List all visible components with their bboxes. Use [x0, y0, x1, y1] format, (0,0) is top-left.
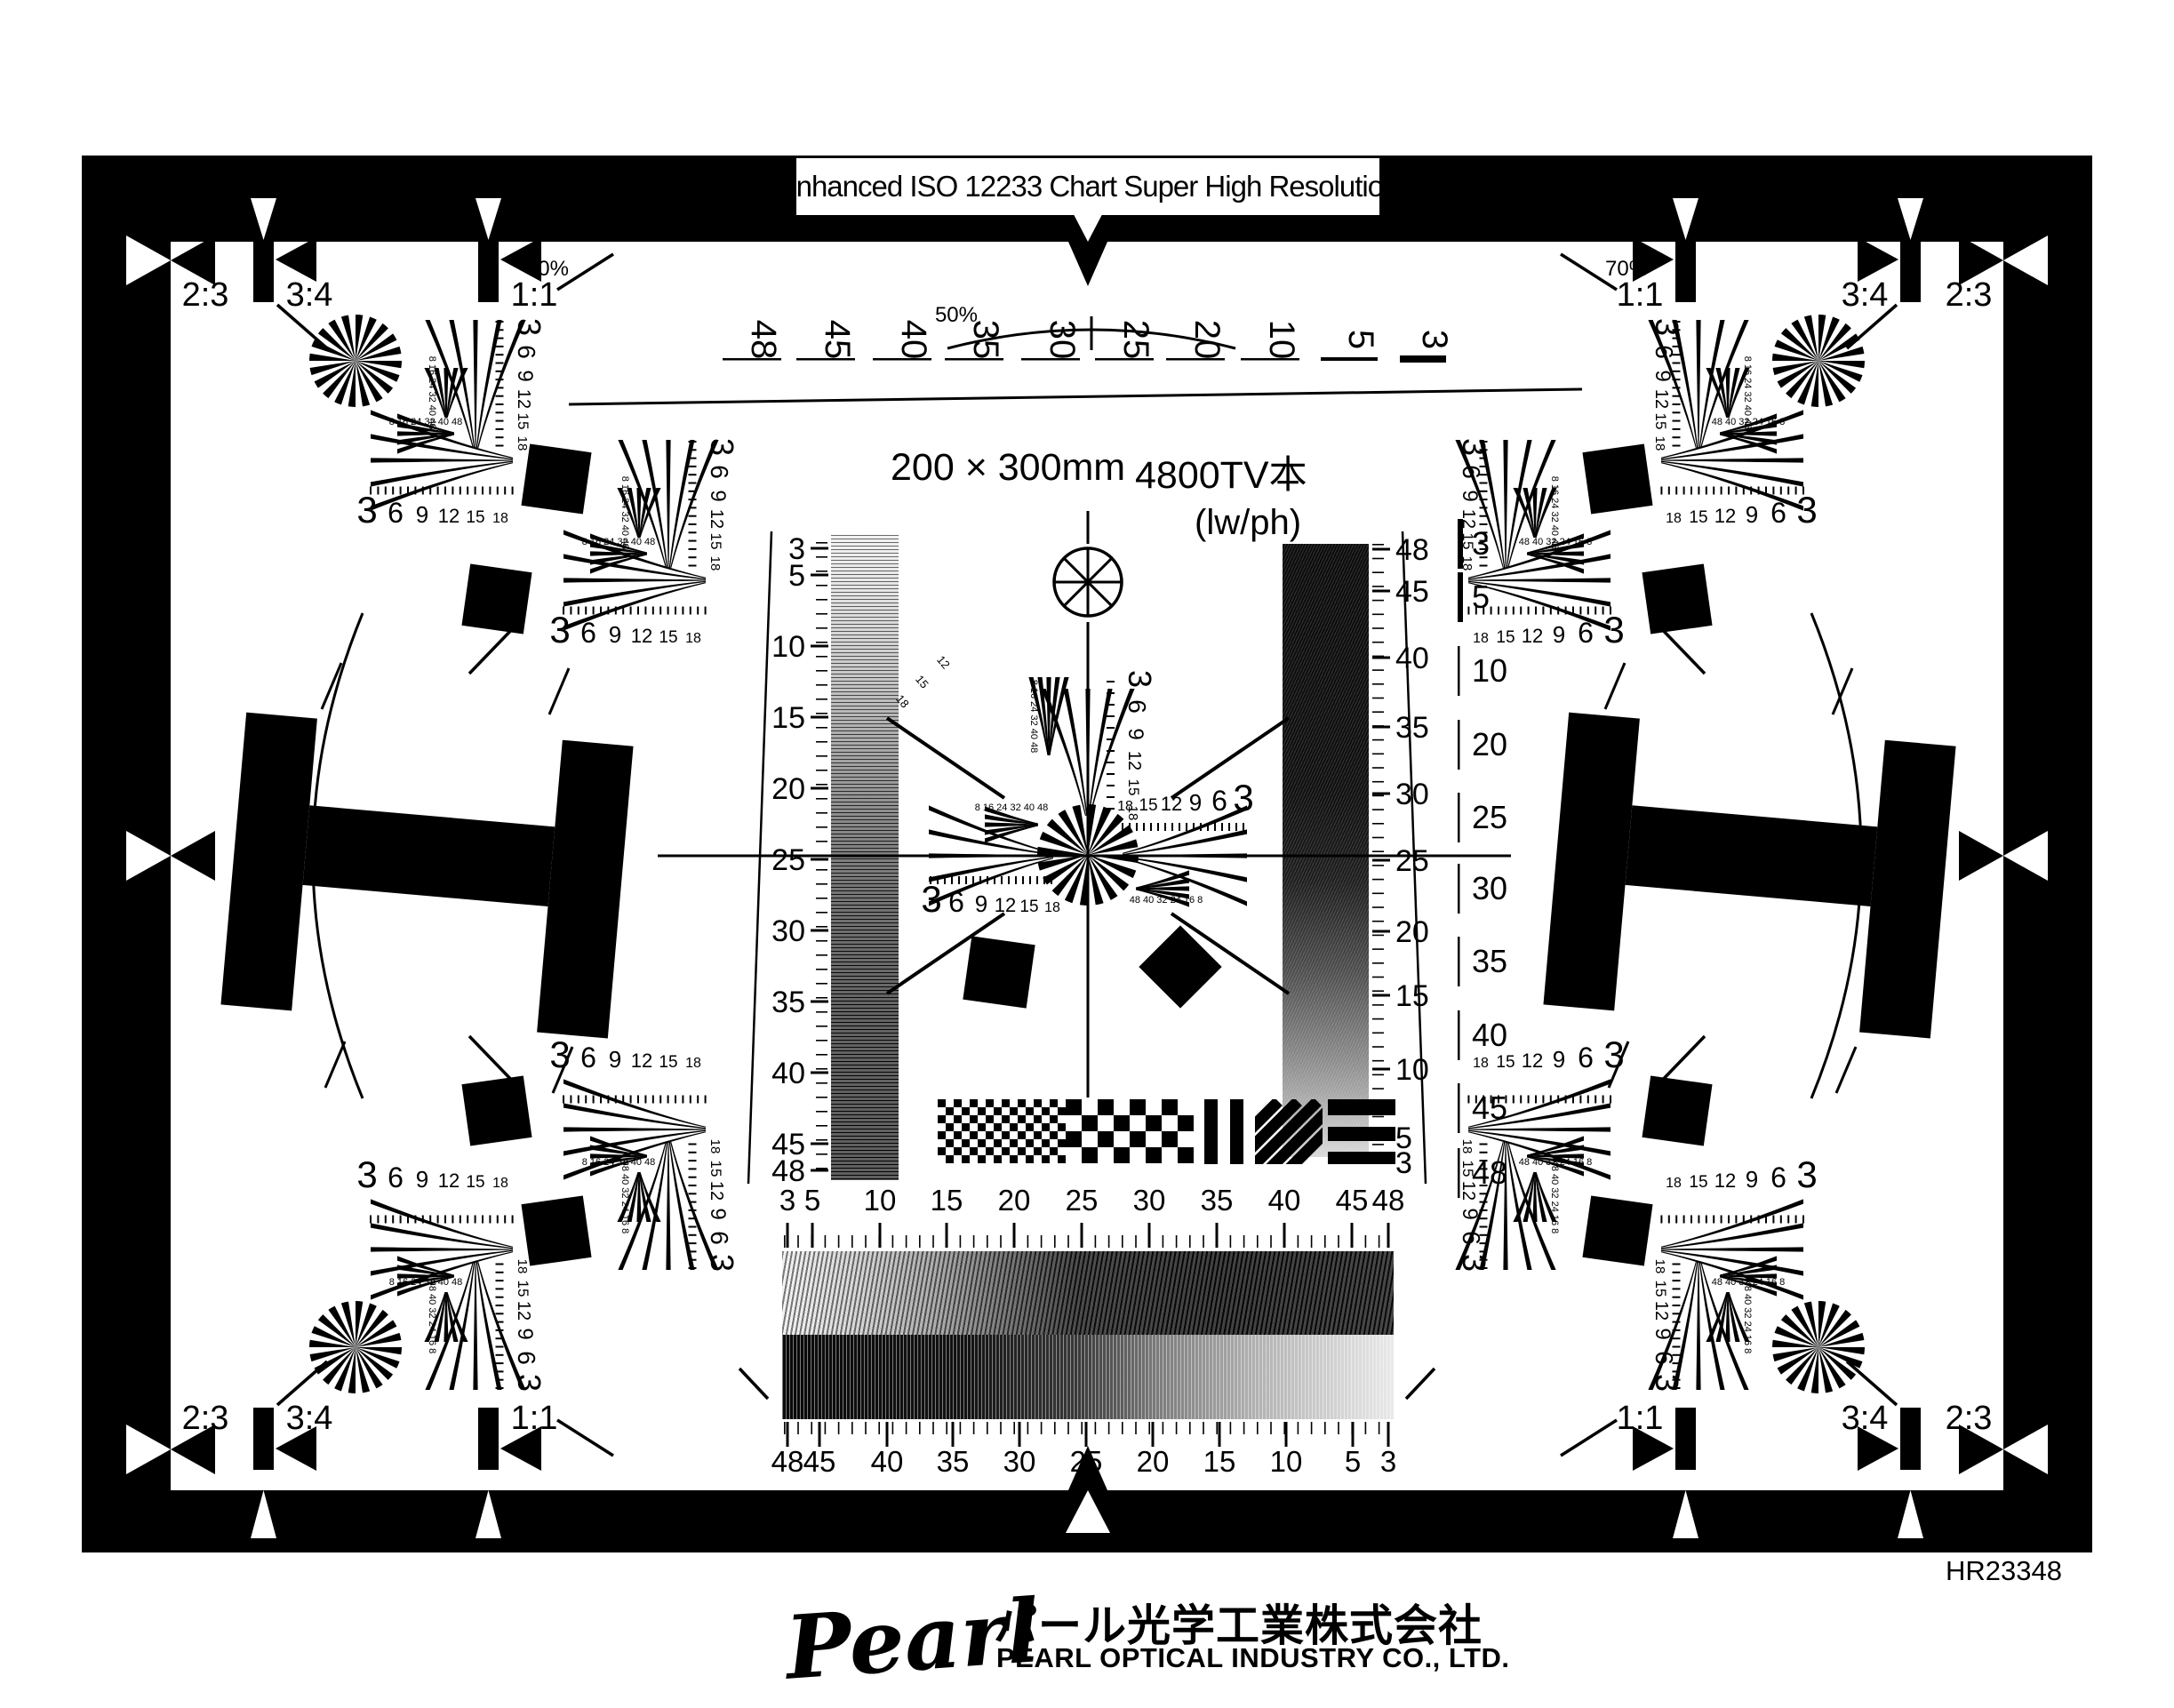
scale-line	[796, 358, 855, 361]
tick	[512, 1216, 514, 1224]
checker-cell-fine	[1042, 1139, 1050, 1147]
checker-cell-fine	[978, 1139, 986, 1147]
tick-minor	[1372, 614, 1384, 616]
test-chart-page: 2:32:33:43:41:11:11:11:13:43:42:32:33691…	[0, 0, 2174, 1708]
pointer-stroke	[469, 624, 517, 674]
tick-major	[811, 930, 828, 932]
sweep-scale-number: 20	[1472, 726, 1507, 762]
tick	[496, 1297, 504, 1298]
tick	[622, 1096, 624, 1104]
tick	[496, 403, 504, 405]
tick	[585, 607, 587, 615]
aspect-ratio-label: 3:4	[286, 1400, 333, 1437]
bottom-sweep-rulers: 3510152025303540454848454035302520151053	[771, 1184, 1405, 1478]
wedge-scale-number: 15	[1652, 1281, 1669, 1297]
tick-minor	[1095, 1235, 1097, 1248]
wedge-scale-number: 12	[707, 1181, 726, 1201]
tick-minor	[1216, 1235, 1218, 1248]
tick	[1660, 487, 1662, 495]
tick-minor	[1257, 1422, 1259, 1434]
tick	[496, 420, 504, 422]
sweep-scale-number: 45	[803, 1445, 836, 1478]
tick-minor	[816, 642, 827, 643]
tick	[1235, 823, 1237, 831]
tick	[1221, 823, 1223, 831]
wedge-scale-number: 18	[1459, 1139, 1475, 1154]
tick	[675, 1096, 676, 1104]
tick	[607, 607, 609, 615]
sweep-scale-number: 35	[1472, 943, 1507, 979]
wedge-scale-number: 15	[659, 628, 677, 647]
h-target-right	[1543, 713, 1955, 1039]
wedge-scale-number: 15	[515, 1281, 532, 1297]
hyperbolic-wedge-line	[473, 1262, 477, 1390]
checker-cell-fine	[1002, 1147, 1010, 1155]
tick-minor	[851, 1235, 853, 1248]
tick	[1480, 1144, 1488, 1145]
hyperbolic-wedge-line	[563, 1079, 706, 1127]
tick-minor	[816, 741, 827, 743]
tick-minor	[919, 1235, 921, 1248]
wedge-scale-number: 18	[1666, 1176, 1682, 1191]
aspect-ratio-label: 2:3	[1946, 276, 1993, 314]
wedge-scale-number: 6	[1650, 345, 1678, 359]
tick	[1171, 823, 1173, 831]
wedge-scale-number: 9	[706, 490, 730, 501]
tick-minor	[1298, 1235, 1299, 1248]
tick	[689, 474, 697, 475]
tick	[496, 1354, 504, 1356]
aspect-ratio-label: 1:1	[511, 276, 558, 314]
black-square	[1642, 1075, 1712, 1145]
checker-cell-fine	[1002, 1131, 1010, 1139]
tick	[689, 483, 697, 484]
percent-line	[1561, 1420, 1617, 1456]
wedge-scale-number: 6	[706, 465, 733, 479]
wedge-scale-number: 6	[388, 497, 404, 529]
wedge-scale-number: 18	[685, 1056, 701, 1071]
tick-minor	[1163, 1422, 1164, 1434]
scale-segment	[1458, 646, 1460, 696]
tick	[496, 1370, 504, 1372]
tick	[1480, 1226, 1488, 1228]
tick	[994, 876, 995, 884]
tick	[1122, 823, 1123, 831]
tick-minor	[825, 1235, 827, 1248]
checker-cell-coarse	[1178, 1147, 1194, 1163]
tick	[475, 487, 476, 495]
hyperbolic-wedge-line	[1696, 1262, 1700, 1390]
tick	[1480, 1250, 1488, 1252]
registration-bar	[1900, 1408, 1921, 1470]
tick	[689, 523, 697, 525]
wedge-scale-number: 15	[466, 508, 484, 527]
tick	[1610, 1096, 1611, 1104]
tick	[1542, 1096, 1544, 1104]
hyperbolic-wedge-line	[1661, 458, 1803, 462]
tick-minor	[816, 670, 827, 672]
scale-segment	[1458, 519, 1463, 569]
tick	[689, 1177, 697, 1178]
sweep-scale-number: 15	[931, 1184, 963, 1217]
wedge-scale-number: 12	[1714, 1169, 1736, 1192]
tick	[689, 540, 697, 542]
tick	[1743, 1216, 1745, 1224]
hyperbolic-wedge-line	[371, 458, 513, 462]
checker-cell-fine	[986, 1115, 994, 1123]
wedge-scale-number: 18	[1473, 1056, 1489, 1071]
wedge-scale-number: 3	[1649, 318, 1685, 336]
wedge-scale-number: 9	[609, 1046, 621, 1073]
tick-minor	[1372, 921, 1384, 922]
tick-minor	[1108, 1422, 1110, 1434]
tick	[467, 1216, 468, 1224]
tick	[496, 1387, 504, 1389]
tick-minor	[1095, 1422, 1097, 1434]
checker-cell-coarse	[1098, 1099, 1114, 1115]
scale-line	[1321, 357, 1378, 361]
black-square	[521, 443, 591, 514]
tick-minor	[811, 1235, 812, 1248]
tick	[1675, 1216, 1677, 1224]
checker-cell-fine	[1058, 1139, 1066, 1147]
checker-cell-fine	[962, 1107, 970, 1115]
tick	[1673, 1288, 1681, 1289]
tick	[578, 607, 579, 615]
wedge-scale-number: 12	[1714, 505, 1736, 527]
black-square	[1582, 1195, 1652, 1265]
tick	[482, 487, 484, 495]
tick	[1675, 487, 1677, 495]
h-stem	[1543, 713, 1639, 1011]
wedge-scale-number: 3	[704, 438, 740, 456]
tick	[1758, 1216, 1760, 1224]
tick	[1721, 487, 1722, 495]
scale-segment	[1458, 720, 1460, 770]
tick	[689, 1209, 697, 1211]
vertical-bar	[1204, 1099, 1218, 1164]
checker-cell-fine	[1034, 1115, 1042, 1123]
scale-segment	[1458, 1083, 1460, 1133]
percent-label: 70%	[526, 257, 569, 281]
hyperbolic-wedge-line	[1503, 440, 1507, 568]
checker-cell-fine	[970, 1131, 978, 1139]
tick	[1698, 1216, 1699, 1224]
tick	[496, 1379, 504, 1381]
horizontal-bar	[1328, 1152, 1395, 1164]
tick-minor	[973, 1235, 975, 1248]
checker-cell-fine	[938, 1147, 946, 1155]
hyperbolic-wedge-line	[666, 1142, 670, 1270]
tick	[690, 1096, 691, 1104]
sweep-scale-number: 5	[1472, 579, 1490, 615]
tick	[615, 607, 617, 615]
tick-minor	[1372, 935, 1384, 937]
wedge-scale-number: 6	[513, 1351, 540, 1365]
tick-major	[811, 574, 828, 577]
tick-minor	[960, 1422, 962, 1434]
checker-cell-fine	[946, 1139, 954, 1147]
tick-minor	[1148, 1235, 1150, 1248]
tick-minor	[1372, 1033, 1384, 1034]
tick	[496, 354, 504, 355]
tick	[1728, 1216, 1730, 1224]
checker-cell-fine	[1050, 1131, 1058, 1139]
tick-minor	[851, 1422, 853, 1434]
tick	[1179, 823, 1180, 831]
wedge-scale-number: 15	[515, 413, 532, 430]
tick	[1721, 1216, 1722, 1224]
tick	[1795, 1216, 1797, 1224]
horizontal-bar	[1328, 1127, 1395, 1141]
black-square	[461, 563, 532, 634]
tick-minor	[816, 1097, 827, 1098]
tick	[1750, 487, 1752, 495]
tick	[965, 876, 967, 884]
tick	[1107, 750, 1115, 752]
tick-minor	[816, 1111, 827, 1113]
tick	[1107, 704, 1115, 706]
aspect-ratio-label: 2:3	[182, 276, 229, 314]
tick-minor	[1372, 683, 1384, 685]
checker-cell-fine	[1018, 1099, 1026, 1107]
wedge-scale-number: 9	[706, 1208, 730, 1219]
tick-minor	[838, 1422, 840, 1434]
checker-cell-fine	[1034, 1147, 1042, 1155]
tick-minor	[960, 1235, 962, 1248]
tick	[1480, 1152, 1488, 1153]
tick	[1480, 458, 1488, 459]
tick-minor	[816, 1040, 827, 1042]
scale-line	[1166, 358, 1225, 361]
tick-minor	[1372, 1060, 1384, 1062]
tick-minor	[1372, 837, 1384, 839]
tick-minor	[1216, 1422, 1218, 1434]
wedge-scale-number: 18	[1473, 631, 1489, 646]
tick-minor	[1230, 1235, 1232, 1248]
sweep-scale-number: 25	[1472, 799, 1507, 835]
tick	[689, 1217, 697, 1219]
vertical-bar	[1230, 1099, 1243, 1164]
aspect-ratio-label: 2:3	[182, 1400, 229, 1437]
wedge-scale-number: 6	[1650, 1351, 1678, 1365]
diagonal-ray	[887, 718, 1004, 798]
hyperbolic-wedge-line	[666, 440, 670, 568]
tick	[400, 1216, 402, 1224]
fine-wedge-scale: 48 40 32 24 16 8	[1549, 1161, 1560, 1234]
wedge-scale-number: 12	[631, 1050, 652, 1072]
tick-minor	[1324, 1422, 1326, 1434]
tick	[1772, 1216, 1774, 1224]
tick-minor	[816, 684, 827, 686]
tick	[1480, 483, 1488, 484]
wedge-scale-number: 18	[1652, 1259, 1667, 1274]
tick	[496, 1329, 504, 1331]
tick	[644, 607, 646, 615]
tick-minor	[1108, 1235, 1110, 1248]
tick	[1467, 607, 1469, 615]
hyperbolic-wedge-line	[1123, 853, 1247, 858]
tick	[1164, 823, 1166, 831]
sweep-scale-number: 40	[1395, 642, 1429, 675]
right-sweep-scales: 48454035302520151053351020253035404548	[1372, 519, 1507, 1198]
tick	[1595, 607, 1596, 615]
scale-line	[1095, 358, 1154, 361]
checker-cell-fine	[946, 1107, 954, 1115]
wedge-scale-number: 3	[1122, 670, 1158, 688]
tick-minor	[816, 1026, 827, 1027]
tick	[689, 565, 697, 567]
tick-minor	[1203, 1235, 1204, 1248]
star-sectors	[309, 315, 402, 407]
wedge-scale-number: 12	[707, 509, 726, 529]
tick-minor	[946, 1235, 947, 1248]
tick	[689, 1168, 697, 1169]
sweep-scale-number: 15	[1203, 1445, 1236, 1478]
tick-minor	[1372, 571, 1384, 573]
hyperbolic-wedge-line	[1085, 689, 1090, 816]
tick-major	[787, 1223, 789, 1248]
tick-minor	[1372, 962, 1384, 964]
wedge-scale-number: 6	[388, 1161, 404, 1193]
bowtie-black-triangle	[1959, 831, 2003, 881]
tick	[1535, 1096, 1537, 1104]
checker-cell-fine	[986, 1147, 994, 1155]
sweep-scale-number: 30	[1472, 870, 1507, 906]
tick-minor	[1122, 1235, 1123, 1248]
tick	[1186, 823, 1187, 831]
hyperbolic-wedge-line	[563, 578, 706, 582]
tick	[563, 1096, 564, 1104]
wedge-scale-number: 3	[1796, 489, 1817, 531]
sweep-scale-number: 48	[1472, 1154, 1507, 1191]
tick-minor	[1372, 906, 1384, 908]
checker-cell-coarse	[1162, 1131, 1178, 1147]
tick	[689, 441, 697, 443]
aspect-ratio-label: 1:1	[1617, 1400, 1664, 1437]
tick-minor	[1243, 1422, 1245, 1434]
tick	[1572, 607, 1574, 615]
registration-bar	[1675, 240, 1696, 302]
tick-major	[1372, 590, 1390, 593]
wedge-scale-number: 9	[416, 501, 428, 528]
tick-minor	[816, 812, 827, 814]
fine-wedge-scale: 48 40 32 24 16 8	[1742, 1281, 1753, 1354]
tick	[497, 1216, 499, 1224]
wedge-scale-number: 18	[707, 556, 723, 571]
tick	[452, 1216, 453, 1224]
tick-minor	[1372, 586, 1384, 587]
checker-cell-coarse	[1130, 1099, 1146, 1115]
wedge-scale-number: 12	[438, 1169, 460, 1192]
checker-cell-fine	[954, 1115, 962, 1123]
ray-stroke	[325, 1042, 345, 1088]
tick-minor	[1372, 544, 1384, 546]
tick	[689, 556, 697, 558]
wedge-scale-number: 18	[515, 1259, 530, 1274]
wedge-scale-number: 3	[921, 878, 941, 920]
tick-minor	[1372, 698, 1384, 699]
tick-major	[952, 1422, 955, 1447]
tick-major	[1219, 1422, 1221, 1447]
h-crossbar	[1626, 805, 1878, 906]
wedge-scale-number: 12	[1522, 625, 1543, 647]
wedge-scale-number: 3	[1456, 438, 1492, 456]
sweep-scale-number: 10	[1395, 1053, 1429, 1087]
unit-label: (lw/ph)	[1195, 503, 1301, 543]
wedge-scale-number: 3	[704, 1254, 740, 1272]
chart-size-label: 200 × 300mm	[891, 446, 1125, 490]
checker-cell-fine	[962, 1123, 970, 1131]
tick-minor	[878, 1422, 880, 1434]
wedge-scale-number: 15	[1689, 1173, 1707, 1192]
tick	[689, 1152, 697, 1153]
tick	[1015, 876, 1017, 884]
tick-minor	[892, 1235, 894, 1248]
wedge-scale-number: 18	[1652, 436, 1667, 451]
pointer-stroke	[1657, 1036, 1705, 1086]
tick	[689, 1250, 697, 1252]
wedge-scale-number: 6	[1458, 1231, 1485, 1245]
siemens-star-icon	[1772, 1301, 1865, 1393]
tick	[407, 1216, 409, 1224]
tick-major	[811, 1169, 828, 1172]
tick-minor	[1148, 1422, 1150, 1434]
wedge-scale-number: 9	[513, 1328, 537, 1339]
checker-cell-fine	[986, 1131, 994, 1139]
tick	[1683, 487, 1685, 495]
checker-cell-coarse	[1066, 1099, 1082, 1115]
tick-minor	[1372, 865, 1384, 866]
sweep-scale-number: 10	[864, 1184, 897, 1217]
wedge-cluster: 36912151848 40 32 24 16 88 16 24 32 40 4…	[461, 1034, 740, 1272]
tick	[1051, 876, 1052, 884]
pointer-stroke	[1657, 624, 1705, 674]
h-stem	[1859, 740, 1955, 1039]
tick	[659, 1096, 661, 1104]
tick	[422, 1216, 424, 1224]
tick-minor	[816, 1082, 827, 1084]
tick-minor	[816, 1125, 827, 1127]
tick	[652, 607, 654, 615]
tick-minor	[1372, 781, 1384, 783]
tick-minor	[1372, 1074, 1384, 1076]
tick	[689, 1144, 697, 1145]
wedge-scale-number: 6	[1211, 785, 1227, 817]
tick-minor	[1372, 1088, 1384, 1089]
scale-line	[1400, 355, 1446, 363]
tick	[689, 1242, 697, 1244]
checker-cell-coarse	[1146, 1115, 1162, 1131]
wedge-scale-number: 6	[1123, 699, 1151, 714]
checker-cell-fine	[1010, 1107, 1018, 1115]
scale-segment	[1458, 572, 1463, 622]
chart-title-box: Enhanced ISO 12233 Chart Super High Reso…	[796, 158, 1379, 215]
tick	[593, 607, 595, 615]
tick-major	[1085, 1422, 1088, 1447]
tick	[1579, 607, 1581, 615]
tick-minor	[1257, 1235, 1259, 1248]
tick	[1107, 738, 1115, 740]
tick	[1706, 487, 1707, 495]
tick-minor	[932, 1422, 934, 1434]
tick-minor	[784, 1235, 786, 1248]
tick-minor	[1203, 1422, 1204, 1434]
wedge-scale-number: 9	[416, 1166, 428, 1193]
tick	[1706, 1216, 1707, 1224]
tick	[437, 1216, 439, 1224]
tick	[958, 876, 960, 884]
